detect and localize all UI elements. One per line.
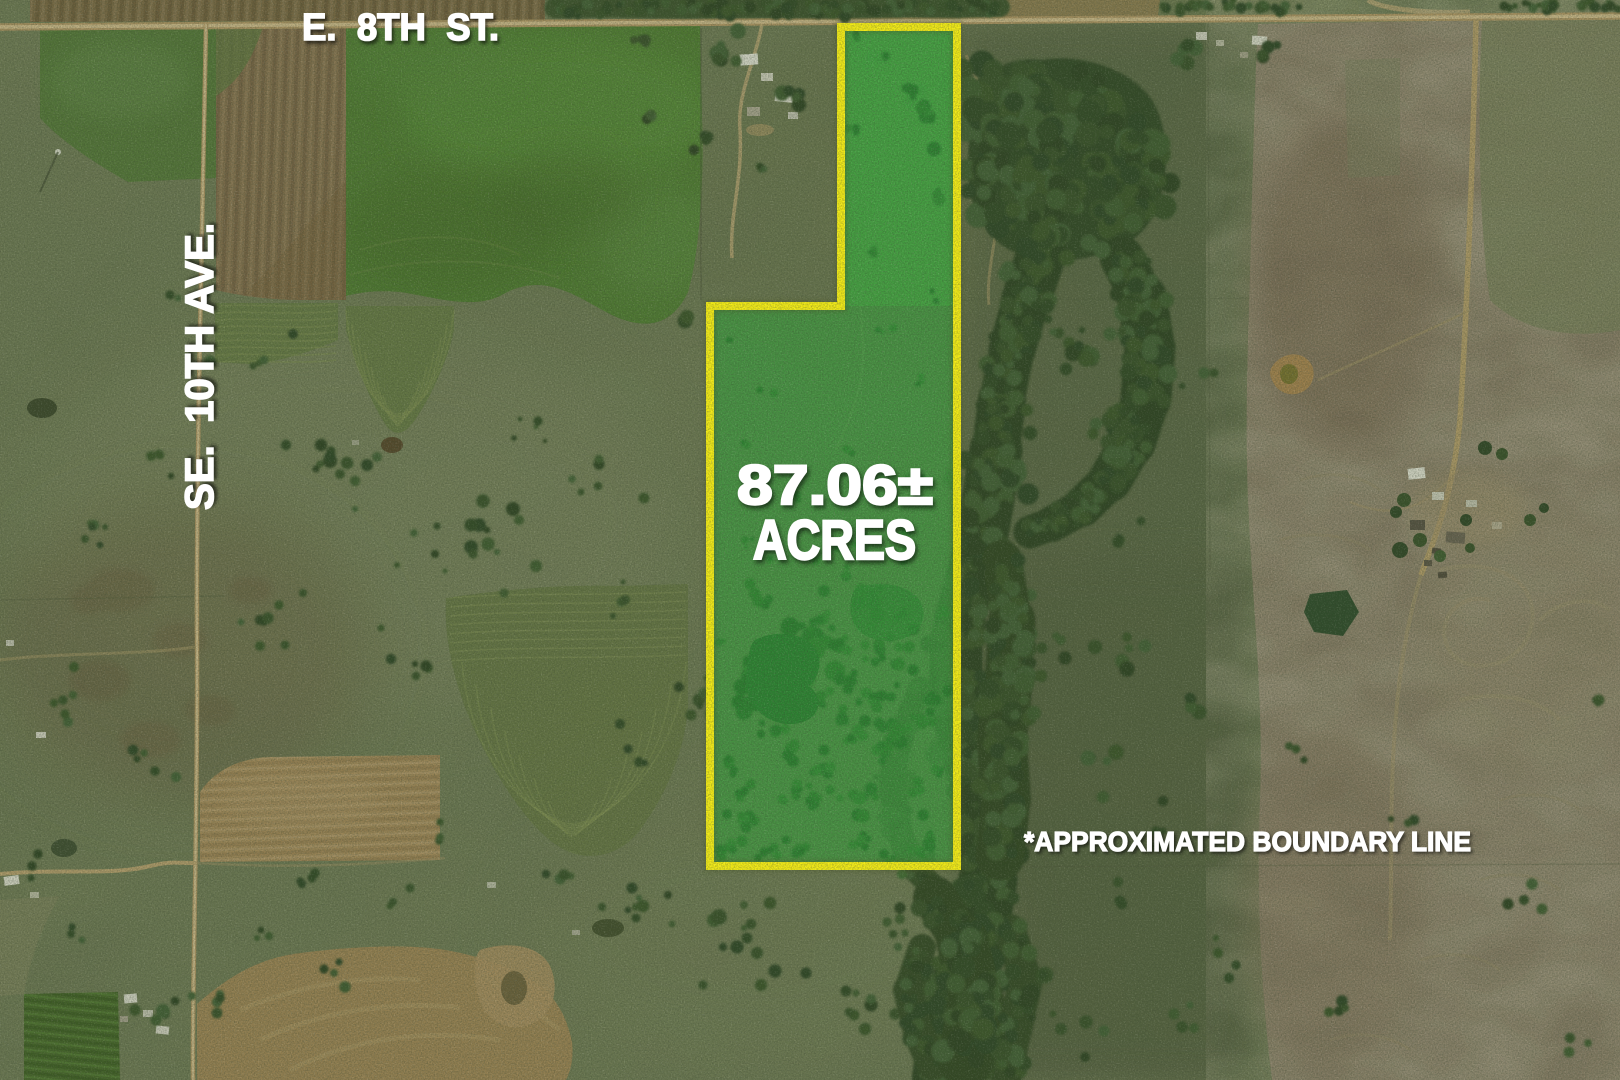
svg-text:*APPROXIMATED BOUNDARY LINE: *APPROXIMATED BOUNDARY LINE bbox=[1024, 826, 1471, 857]
svg-text:E. 8TH ST.: E. 8TH ST. bbox=[302, 7, 499, 49]
svg-text:87.06±: 87.06± bbox=[737, 453, 933, 516]
svg-text:ACRES: ACRES bbox=[753, 508, 916, 571]
svg-text:SE. 10TH AVE.: SE. 10TH AVE. bbox=[178, 223, 222, 510]
